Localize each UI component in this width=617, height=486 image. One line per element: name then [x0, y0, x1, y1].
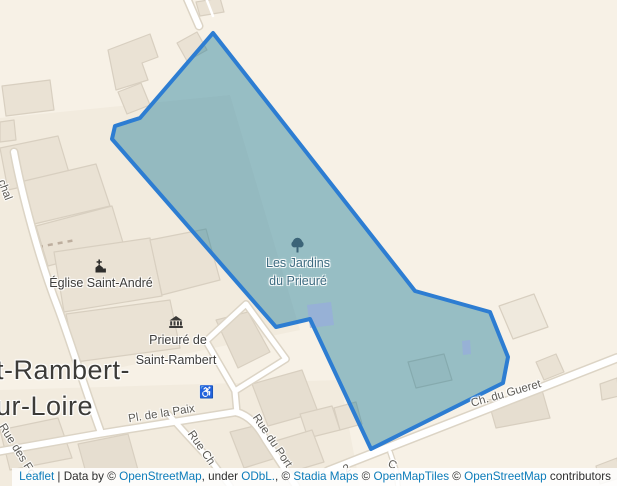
openstreetmap-link2[interactable]: OpenStreetMap [464, 470, 547, 483]
building [499, 294, 548, 339]
building [2, 80, 54, 116]
leaflet-link[interactable]: Leaflet [19, 470, 54, 483]
map-tiles-layer [0, 0, 617, 486]
tinted-building [462, 340, 471, 355]
attribution-text: , under [202, 470, 242, 483]
building [600, 378, 617, 400]
stadia-maps-link[interactable]: Stadia Maps [293, 470, 358, 483]
map-viewport[interactable]: t-Rambert- ur-Loire Église Saint-André P… [0, 0, 617, 486]
building [0, 120, 16, 142]
odbl-link[interactable]: ODbL. [241, 470, 275, 483]
attribution-text: contributors [547, 470, 611, 483]
attribution-bar: Leaflet | Data by © OpenStreetMap, under… [12, 468, 617, 486]
attribution-text: © [449, 470, 464, 483]
attribution-text: © [358, 470, 373, 483]
openmaptiles-link[interactable]: OpenMapTiles [373, 470, 449, 483]
openstreetmap-link[interactable]: OpenStreetMap [119, 470, 202, 483]
attribution-text: , © [275, 470, 293, 483]
attribution-text: | Data by © [54, 470, 119, 483]
building [108, 34, 158, 90]
